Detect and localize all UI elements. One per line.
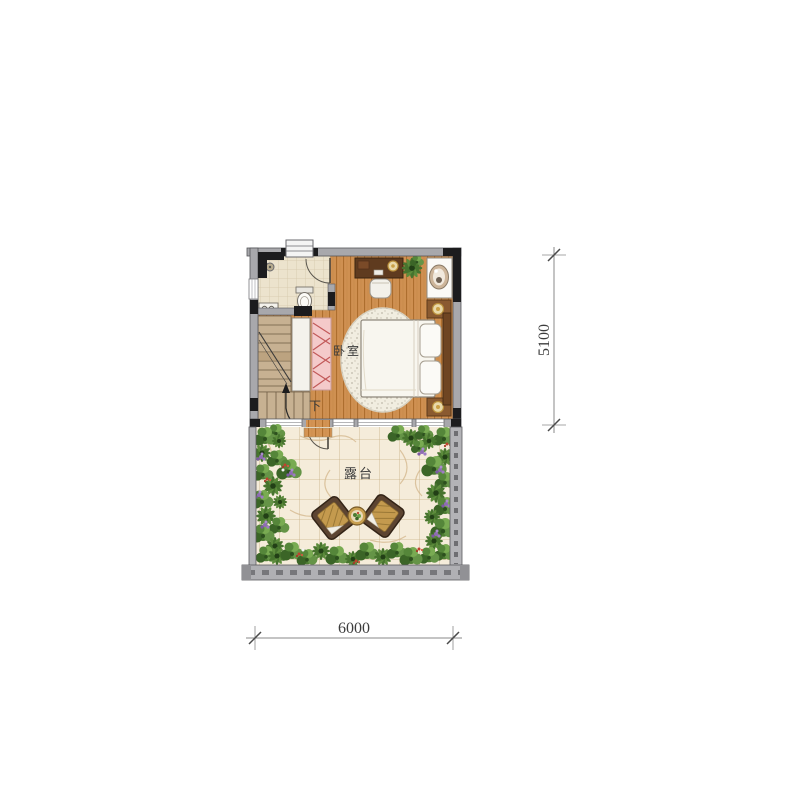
dimension-right: 5100 — [536, 247, 566, 433]
stair-landing — [292, 318, 310, 391]
floor-plan-canvas: 卧室 下 — [0, 0, 800, 800]
door-step — [304, 428, 332, 437]
desk — [355, 258, 403, 278]
stairs-down-label: 下 — [309, 399, 323, 413]
bedroom-label: 卧室 — [333, 343, 361, 358]
side-table — [348, 507, 366, 525]
headboard — [443, 313, 451, 405]
wall-block — [294, 306, 312, 316]
dimension-bottom: 6000 — [246, 620, 462, 650]
white-flower-icon — [302, 549, 305, 552]
bedroom-level: 卧室 下 — [247, 240, 461, 444]
door-opening — [306, 420, 330, 427]
desk-chair — [370, 279, 391, 298]
floor-plan-drawing: 卧室 下 — [0, 0, 800, 800]
white-flower-icon — [282, 469, 285, 472]
left-wall-window — [249, 279, 258, 299]
terrace-label: 露台 — [344, 466, 374, 481]
pillow — [420, 361, 441, 394]
wall-block — [328, 292, 335, 306]
pillow — [420, 324, 441, 357]
terrace: 露台 — [242, 424, 469, 580]
wardrobe — [312, 318, 331, 390]
vanity-cabinet — [427, 258, 452, 298]
vent-shaft — [286, 240, 313, 257]
dimension-horizontal-label: 6000 — [338, 620, 370, 637]
dimension-vertical-label: 5100 — [536, 324, 553, 356]
bathroom — [258, 256, 335, 316]
